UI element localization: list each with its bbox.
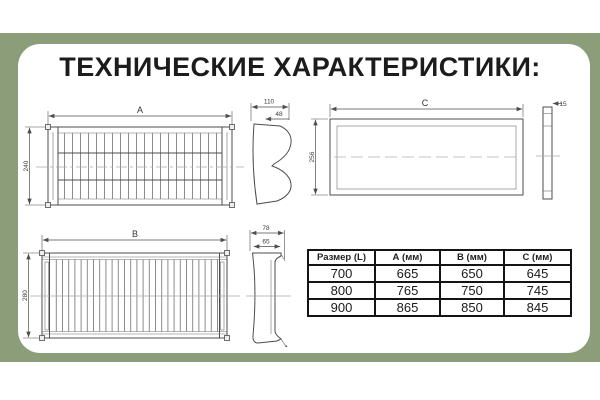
- cell-b: 750: [440, 282, 504, 299]
- cell-c: 645: [504, 265, 571, 282]
- cell-size: 800: [308, 282, 375, 299]
- cell-c: 845: [504, 299, 571, 316]
- spec-table: Размер (L) А (мм) В (мм) С (мм) 700 665 …: [307, 249, 572, 317]
- page-title: ТЕХНИЧЕСКИЕ ХАРАКТЕРИСТИКИ:: [0, 52, 600, 83]
- cell-b: 650: [440, 265, 504, 282]
- cell-a: 665: [375, 265, 440, 282]
- cell-size: 700: [308, 265, 375, 282]
- header-a-mm: А (мм): [375, 250, 440, 265]
- header-c-mm: С (мм): [504, 250, 571, 265]
- cell-a: 865: [375, 299, 440, 316]
- cell-size: 900: [308, 299, 375, 316]
- spec-table-header-row: Размер (L) А (мм) В (мм) С (мм): [308, 250, 571, 265]
- header-b-mm: В (мм): [440, 250, 504, 265]
- table-row: 900 865 850 845: [308, 299, 571, 316]
- cell-a: 765: [375, 282, 440, 299]
- header-size-l: Размер (L): [308, 250, 375, 265]
- cell-c: 745: [504, 282, 571, 299]
- cell-b: 850: [440, 299, 504, 316]
- page: ТЕХНИЧЕСКИЕ ХАРАКТЕРИСТИКИ: A 240: [0, 0, 600, 400]
- table-row: 800 765 750 745: [308, 282, 571, 299]
- table-row: 700 665 650 645: [308, 265, 571, 282]
